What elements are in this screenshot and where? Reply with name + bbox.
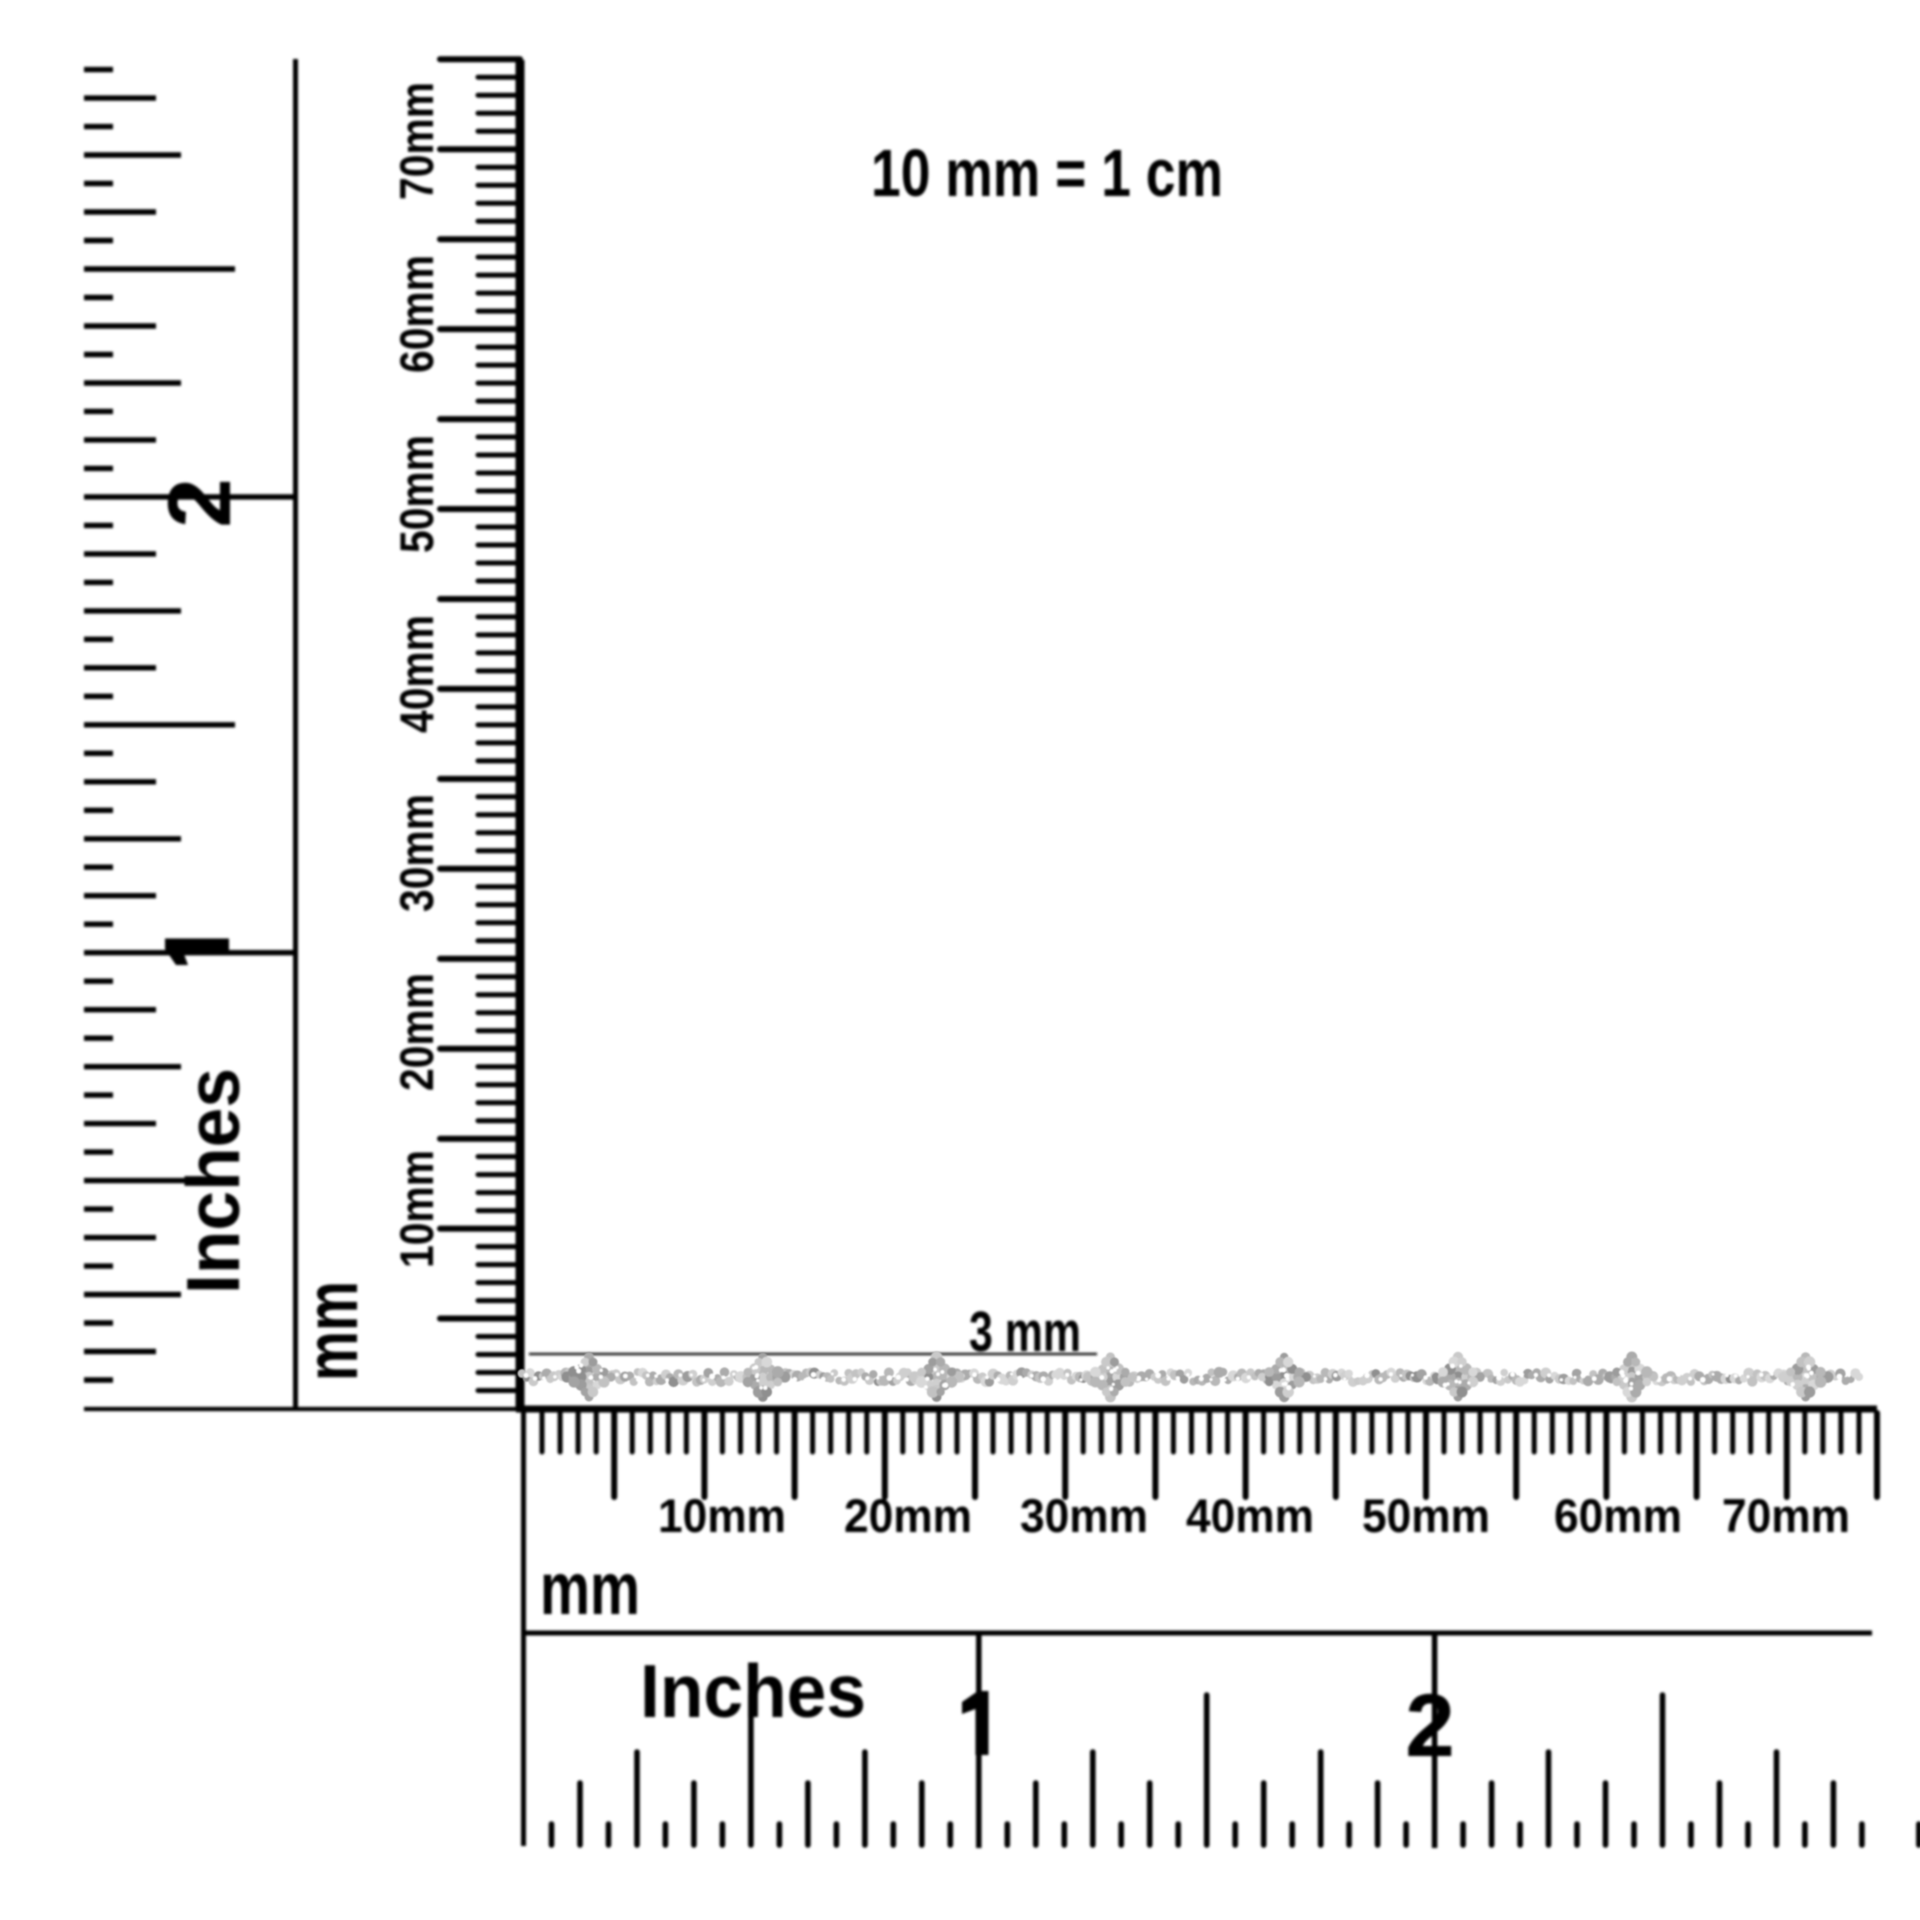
svg-text:10 mm = 1 cm: 10 mm = 1 cm bbox=[871, 136, 1223, 211]
svg-text:Inches: Inches bbox=[171, 1068, 255, 1294]
svg-text:70mm: 70mm bbox=[390, 82, 443, 200]
svg-text:mm: mm bbox=[540, 1547, 640, 1630]
svg-text:30mm: 30mm bbox=[390, 794, 443, 912]
svg-text:20mm: 20mm bbox=[390, 973, 443, 1091]
svg-text:50mm: 50mm bbox=[390, 435, 443, 553]
svg-text:40mm: 40mm bbox=[390, 615, 443, 733]
svg-text:30mm: 30mm bbox=[1020, 1489, 1148, 1542]
svg-text:40mm: 40mm bbox=[1186, 1489, 1314, 1542]
svg-text:10mm: 10mm bbox=[390, 1150, 443, 1268]
svg-text:Inches: Inches bbox=[640, 1649, 866, 1733]
svg-text:70mm: 70mm bbox=[1722, 1489, 1850, 1542]
svg-text:2: 2 bbox=[149, 478, 249, 528]
svg-text:50mm: 50mm bbox=[1362, 1489, 1490, 1542]
svg-text:20mm: 20mm bbox=[844, 1489, 972, 1542]
svg-text:60mm: 60mm bbox=[390, 255, 443, 373]
svg-text:2: 2 bbox=[1405, 1675, 1455, 1775]
svg-text:60mm: 60mm bbox=[1554, 1489, 1682, 1542]
svg-text:mm: mm bbox=[290, 1281, 373, 1381]
svg-text:10mm: 10mm bbox=[658, 1489, 786, 1542]
